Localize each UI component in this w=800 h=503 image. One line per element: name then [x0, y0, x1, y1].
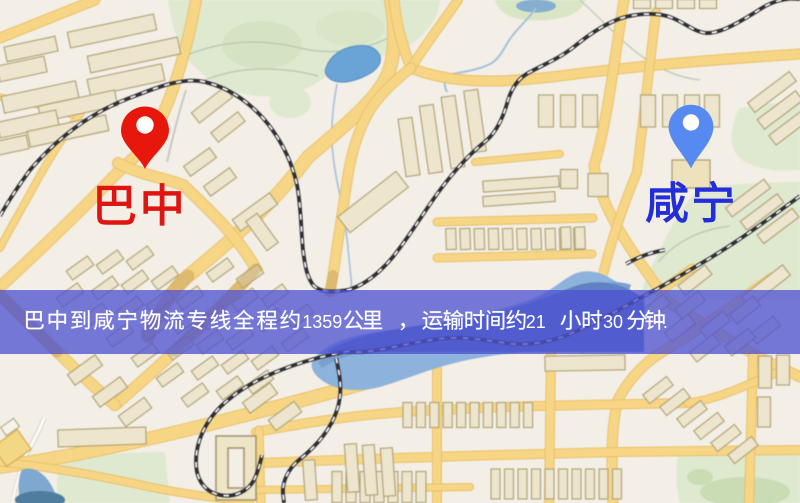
- svg-text:21: 21: [526, 312, 546, 332]
- svg-text:.: .: [663, 312, 668, 332]
- svg-text:1359: 1359: [302, 312, 342, 332]
- svg-text:30: 30: [603, 312, 623, 332]
